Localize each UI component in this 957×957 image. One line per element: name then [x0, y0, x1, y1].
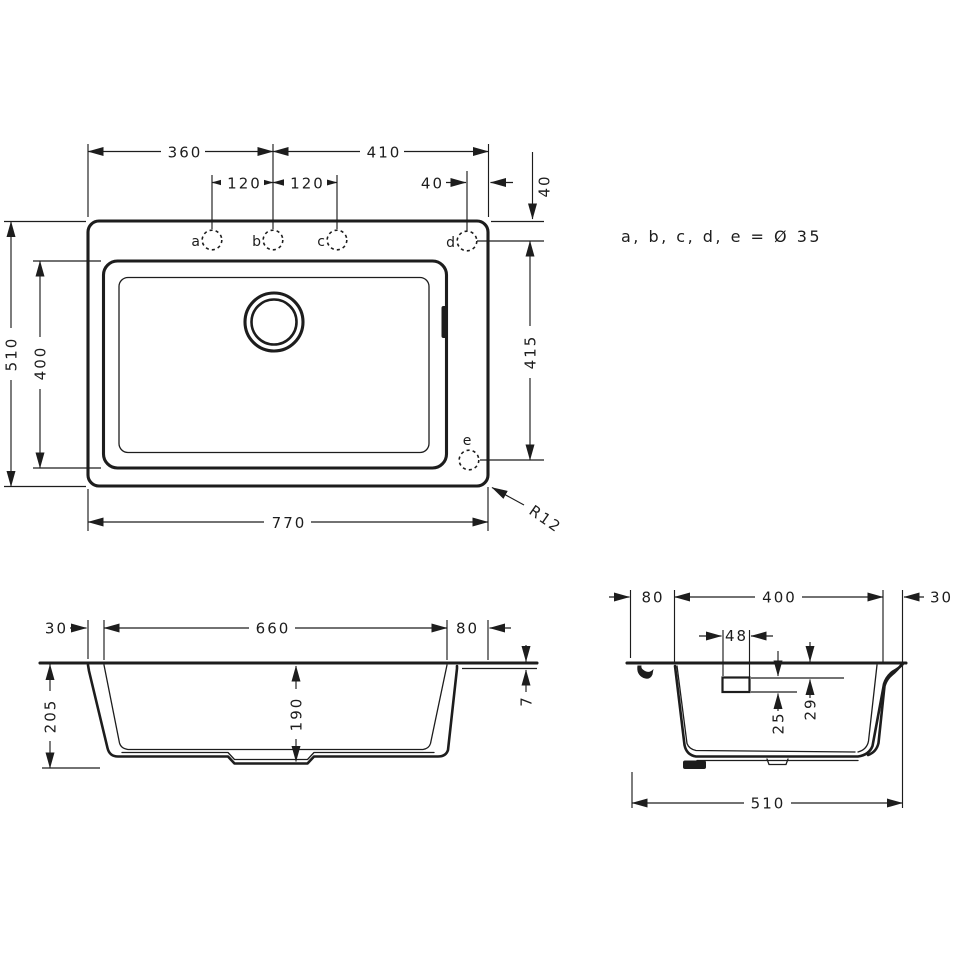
dim-120a: 120 — [227, 175, 262, 193]
side-drain-boss — [767, 759, 788, 765]
holes-diameter-note: a, b, c, d, e = Ø 35 — [621, 227, 822, 246]
dim-40-vertical: 40 — [536, 174, 554, 197]
side-dim-29: 29 — [802, 697, 820, 720]
hole-label-c: c — [317, 234, 325, 250]
dim-400: 400 — [32, 346, 50, 381]
tap-hole-a — [202, 230, 222, 250]
front-dim-80: 80 — [456, 620, 479, 638]
drain-outer-circle — [245, 293, 303, 351]
bowl-bottom-edge — [119, 278, 429, 453]
side-dim-30: 30 — [930, 589, 953, 607]
side-overflow-box — [723, 678, 750, 693]
front-section-view: 30 660 80 205 190 7 — [40, 620, 537, 769]
dim-360: 360 — [168, 144, 203, 162]
front-dim-30: 30 — [45, 620, 68, 638]
hole-label-a: a — [191, 234, 200, 250]
tap-hole-b — [263, 230, 283, 250]
dim-410: 410 — [367, 144, 402, 162]
front-body-outline — [88, 665, 457, 764]
dim-510: 510 — [3, 337, 21, 372]
side-dim-48: 48 — [725, 627, 748, 645]
radius-label: R12 — [526, 502, 565, 537]
dim-415: 415 — [522, 335, 540, 370]
side-dim-400: 400 — [762, 589, 797, 607]
side-foot — [683, 761, 706, 770]
tap-hole-e — [459, 450, 479, 470]
drain-inner-circle — [252, 300, 297, 345]
radius-leader-line — [492, 488, 524, 506]
tap-hole-c — [327, 230, 347, 250]
front-dim-660: 660 — [256, 620, 291, 638]
side-dim-510: 510 — [751, 795, 786, 813]
dim-770: 770 — [272, 514, 307, 532]
front-dim-205: 205 — [42, 699, 60, 734]
dim-120b: 120 — [290, 175, 325, 193]
overflow-slot-top — [442, 306, 448, 338]
hole-label-b: b — [252, 234, 261, 250]
side-extension-lines-top — [631, 590, 903, 808]
sink-dimension-drawing: a b c d e 360 410 120 120 40 40 415 — [0, 0, 957, 957]
side-tap-hole-section — [637, 666, 653, 679]
side-extension-lines-overflow — [751, 678, 844, 692]
front-dim-190: 190 — [288, 697, 306, 732]
front-dim-7: 7 — [518, 695, 536, 707]
hole-label-e: e — [463, 433, 472, 449]
tap-hole-d — [457, 231, 477, 251]
dim-40-hole-d: 40 — [421, 175, 444, 193]
side-dim-25: 25 — [770, 711, 788, 734]
hole-label-d: d — [446, 235, 455, 251]
top-view: a b c d e 360 410 120 120 40 40 415 — [3, 143, 823, 537]
side-section-view: 80 400 30 48 29 25 510 — [609, 589, 953, 813]
side-dim-80: 80 — [641, 589, 664, 607]
technical-drawing-page: a b c d e 360 410 120 120 40 40 415 — [0, 0, 957, 957]
front-bowl-inner — [104, 665, 447, 750]
